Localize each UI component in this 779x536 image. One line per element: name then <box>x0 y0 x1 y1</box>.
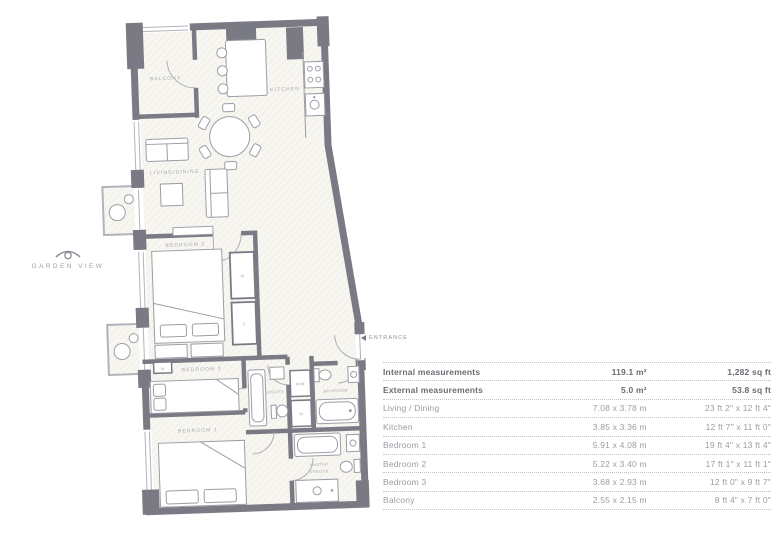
table-row: Internal measurements 119.1 m² 1,282 sq … <box>383 362 771 381</box>
measure-imperial: 8 ft 4" x 7 ft 0" <box>647 495 771 505</box>
pillow <box>154 398 166 410</box>
bench <box>191 343 223 357</box>
measure-metric: 2.55 x 2.15 m <box>530 495 646 505</box>
measure-metric: 7.08 x 3.78 m <box>530 403 646 413</box>
floorplan-page: BALCONY KITCHEN LIVING/DINING BEDROOM 2 … <box>0 0 779 536</box>
measure-name: Kitchen <box>383 422 530 432</box>
table-row: External measurements 5.0 m² 53.8 sq ft <box>383 381 771 399</box>
pillow <box>192 323 218 336</box>
marker-wardrobe: W <box>241 274 245 278</box>
room-label-kitchen: KITCHEN <box>270 86 300 93</box>
measure-imperial: 12 ft 7" x 11 ft 0" <box>647 422 771 432</box>
measurements-table: Internal measurements 119.1 m² 1,282 sq … <box>383 362 771 510</box>
bedroom1-furniture <box>158 440 246 507</box>
measure-imperial: 1,282 sq ft <box>647 367 771 377</box>
measure-imperial: 53.8 sq ft <box>647 385 771 395</box>
toilet-icon <box>354 459 360 472</box>
stool-icon <box>217 66 227 76</box>
measure-metric: 3.85 x 3.36 m <box>530 422 646 432</box>
toilet-icon <box>271 405 276 418</box>
marker-wardrobe: W <box>299 412 303 416</box>
measure-metric: 5.0 m² <box>530 385 646 395</box>
measure-imperial: 23 ft 2" x 12 ft 4" <box>647 403 771 413</box>
room-label-master-ensuite-1: MASTER <box>310 462 328 467</box>
bedroom2-furniture <box>152 248 258 358</box>
stool-icon <box>218 84 228 94</box>
pillow <box>160 324 186 337</box>
bench <box>155 344 187 358</box>
table-row: Living / Dining 7.08 x 3.78 m 23 ft 2" x… <box>383 400 771 418</box>
measure-name: External measurements <box>383 385 530 395</box>
toilet-icon <box>314 369 319 382</box>
entrance-arrow-icon <box>361 335 366 341</box>
room-label-balcony: BALCONY <box>150 75 182 82</box>
sink-icon <box>348 366 360 382</box>
measure-name: Bedroom 3 <box>383 477 530 487</box>
garden-view-label: GARDEN VIEW <box>22 263 114 270</box>
measure-name: Living / Dining <box>383 403 530 413</box>
table-row: Bedroom 3 3.68 x 2.93 m 12 ft 0" x 9 ft … <box>383 473 771 491</box>
measure-imperial: 17 ft 1" x 11 ft 1" <box>647 459 771 469</box>
room-label-master-ensuite-2: ENSUITE <box>310 469 329 474</box>
armchair-icon <box>109 204 126 221</box>
table-row: Balcony 2.55 x 2.15 m 8 ft 4" x 7 ft 0" <box>383 492 771 510</box>
measure-name: Bedroom 2 <box>383 459 530 469</box>
table-row: Bedroom 2 5.22 x 3.40 m 17 ft 1" x 11 ft… <box>383 455 771 473</box>
side-table <box>124 195 133 204</box>
eye-icon <box>54 246 82 260</box>
room-label-ensuite: ENSUITE <box>265 390 284 395</box>
media-unit <box>173 226 213 235</box>
measure-imperial: 19 ft 4" x 13 ft 4" <box>647 440 771 450</box>
pillow <box>166 490 198 504</box>
kitchen-island <box>225 39 267 96</box>
measure-name: Bedroom 1 <box>383 440 530 450</box>
measure-name: Internal measurements <box>383 367 530 377</box>
garden-view-annotation: GARDEN VIEW <box>22 246 114 270</box>
marker-washer: W/M <box>296 382 305 386</box>
marker-cupboard: C <box>243 322 246 326</box>
sink-icon <box>346 434 360 451</box>
entrance-annotation: ENTRANCE <box>361 335 408 341</box>
entrance-label: ENTRANCE <box>369 335 408 341</box>
table-row: Bedroom 1 5.91 x 4.08 m 19 ft 4" x 13 ft… <box>383 437 771 455</box>
stove-icon <box>304 61 324 88</box>
measure-imperial: 12 ft 0" x 9 ft 7" <box>647 477 771 487</box>
stool-icon <box>217 48 227 58</box>
marker-wardrobe: W <box>161 367 165 371</box>
table-row: Kitchen 3.85 x 3.36 m 12 ft 7" x 11 ft 0… <box>383 418 771 436</box>
side-table <box>129 333 138 342</box>
measure-metric: 5.91 x 4.08 m <box>530 440 646 450</box>
measure-metric: 3.68 x 2.93 m <box>530 477 646 487</box>
measure-metric: 119.1 m² <box>530 367 646 377</box>
measure-metric: 5.22 x 3.40 m <box>530 459 646 469</box>
pillow <box>153 384 165 396</box>
pillow <box>204 489 236 503</box>
room-label-bathroom: BATHROOM <box>324 389 348 394</box>
dining-table <box>209 116 250 157</box>
coffee-table <box>160 183 183 206</box>
sink-icon <box>270 367 284 379</box>
measure-name: Balcony <box>383 495 530 505</box>
armchair-icon <box>114 343 131 360</box>
